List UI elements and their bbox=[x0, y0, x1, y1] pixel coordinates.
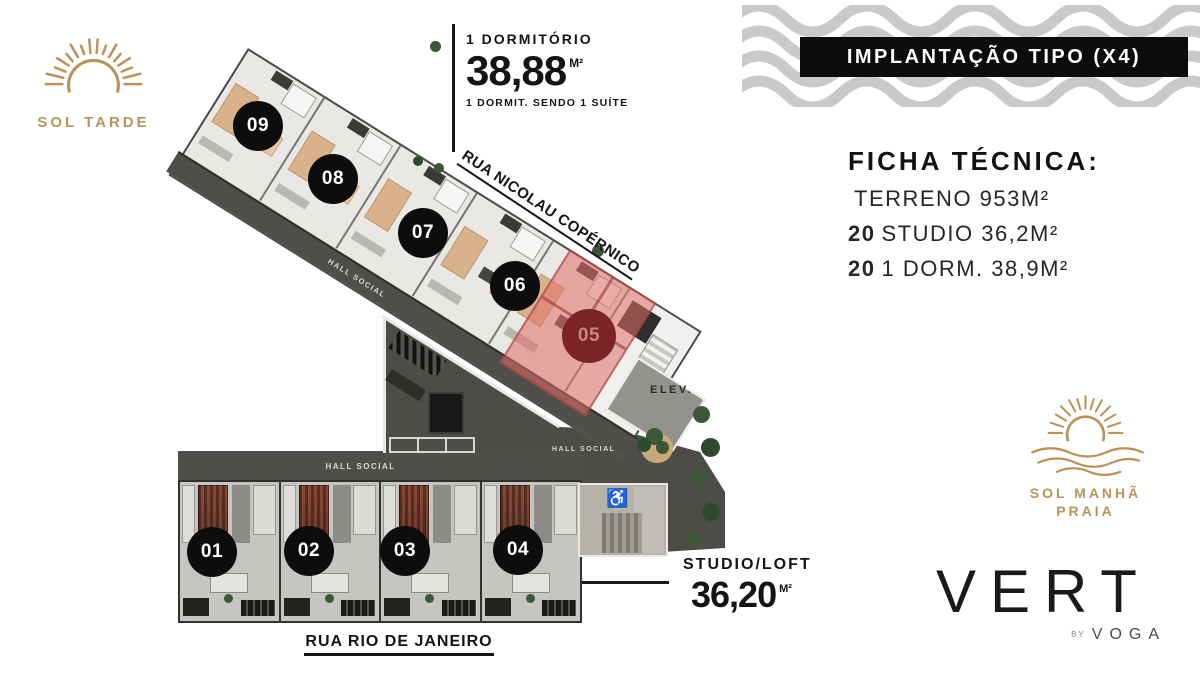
gym-squat-rack bbox=[428, 392, 464, 434]
one-dorm-unit: M² bbox=[569, 56, 583, 70]
ficha-row-dorm: 201 DORM. 38,9M² bbox=[848, 256, 1100, 282]
hall-social-label-south: HALL SOCIAL bbox=[326, 462, 396, 471]
vert-logo: VERT BYVOGA bbox=[936, 562, 1186, 644]
studio-info: STUDIO/LOFT 36,20M² bbox=[683, 556, 812, 613]
one-dorm-type: 1 DORMITÓRIO bbox=[466, 31, 628, 47]
sun-tarde-icon bbox=[26, 30, 161, 105]
sol-manha-praia-logo: SOL MANHÃ PRAIA bbox=[1013, 392, 1158, 519]
vert-byline: BYVOGA bbox=[936, 626, 1186, 644]
banner-title-box: IMPLANTAÇÃO TIPO (X4) bbox=[800, 37, 1188, 77]
gym-lockers bbox=[389, 437, 475, 453]
tree-icon bbox=[434, 163, 444, 173]
ficha-tecnica: FICHA TÉCNICA: TERRENO 953M² 20STUDIO 36… bbox=[848, 146, 1100, 282]
one-dorm-note: 1 DORMIT. SENDO 1 SUÍTE bbox=[466, 97, 628, 109]
unit-marker-02: 02 bbox=[284, 526, 334, 576]
sun-manha-icon bbox=[1013, 392, 1158, 478]
banner-title: IMPLANTAÇÃO TIPO (X4) bbox=[847, 46, 1141, 69]
info-divider-line bbox=[452, 24, 455, 152]
ficha-qty-2: 20 bbox=[848, 256, 875, 281]
vine-icon bbox=[701, 438, 720, 457]
sol-manha-label-1: SOL MANHÃ bbox=[1013, 485, 1158, 501]
vine-icon bbox=[702, 503, 720, 521]
unit-marker-04: 04 bbox=[493, 525, 543, 575]
one-dorm-area: 38,88 bbox=[466, 47, 566, 94]
unit-marker-07: 07 bbox=[398, 208, 448, 258]
wc-fixtures bbox=[602, 513, 642, 553]
studio-pointer-line bbox=[577, 581, 669, 584]
unit-marker-03: 03 bbox=[380, 526, 430, 576]
tree-icon bbox=[413, 156, 423, 166]
accessible-wc-room: ♿ bbox=[578, 483, 668, 557]
gym-wall-left bbox=[383, 318, 386, 453]
ficha-row-terreno: TERRENO 953M² bbox=[848, 186, 1100, 212]
unit-marker-06: 06 bbox=[490, 261, 540, 311]
ficha-text-2: 1 DORM. 38,9M² bbox=[881, 256, 1068, 281]
unit-marker-05-highlighted: 05 bbox=[562, 309, 616, 363]
unit-marker-08: 08 bbox=[308, 154, 358, 204]
sol-manha-label-2: PRAIA bbox=[1013, 503, 1158, 519]
plant-icon bbox=[656, 441, 669, 454]
implantation-plan-page: SOL TARDE 1 DORMITÓRIO 38,88M² 1 DORMIT.… bbox=[0, 0, 1200, 675]
plant-icon bbox=[637, 438, 651, 452]
vert-name: VERT bbox=[936, 562, 1186, 622]
sol-tarde-label: SOL TARDE bbox=[26, 114, 161, 131]
unit-marker-09: 09 bbox=[233, 101, 283, 151]
ficha-text-0: TERRENO 953M² bbox=[854, 186, 1050, 211]
studio-type: STUDIO/LOFT bbox=[683, 556, 812, 574]
sol-tarde-logo: SOL TARDE bbox=[26, 30, 161, 131]
vine-icon bbox=[691, 470, 707, 486]
vert-by-label: BY bbox=[1071, 630, 1086, 639]
studio-unit: M² bbox=[779, 583, 792, 595]
vine-icon bbox=[687, 531, 702, 546]
elevator-label: ELEV. bbox=[650, 384, 693, 396]
ficha-text-1: STUDIO 36,2M² bbox=[881, 221, 1058, 246]
hall-social-band-south: HALL SOCIAL bbox=[178, 451, 582, 482]
ficha-row-studio: 20STUDIO 36,2M² bbox=[848, 221, 1100, 247]
accessible-icon: ♿ bbox=[606, 487, 628, 510]
vine-icon bbox=[693, 406, 710, 423]
ficha-qty-1: 20 bbox=[848, 221, 875, 246]
ficha-title: FICHA TÉCNICA: bbox=[848, 146, 1100, 177]
vert-by-brand: VOGA bbox=[1092, 626, 1166, 643]
street-label-south: RUA RIO DE JANEIRO bbox=[304, 633, 494, 656]
studio-area: 36,20 bbox=[691, 574, 776, 615]
tree-icon bbox=[430, 41, 441, 52]
one-dorm-info: 1 DORMITÓRIO 38,88M² 1 DORMIT. SENDO 1 S… bbox=[466, 31, 628, 109]
unit-marker-01: 01 bbox=[187, 527, 237, 577]
hall-social-label-plaza: HALL SOCIAL bbox=[552, 446, 615, 453]
